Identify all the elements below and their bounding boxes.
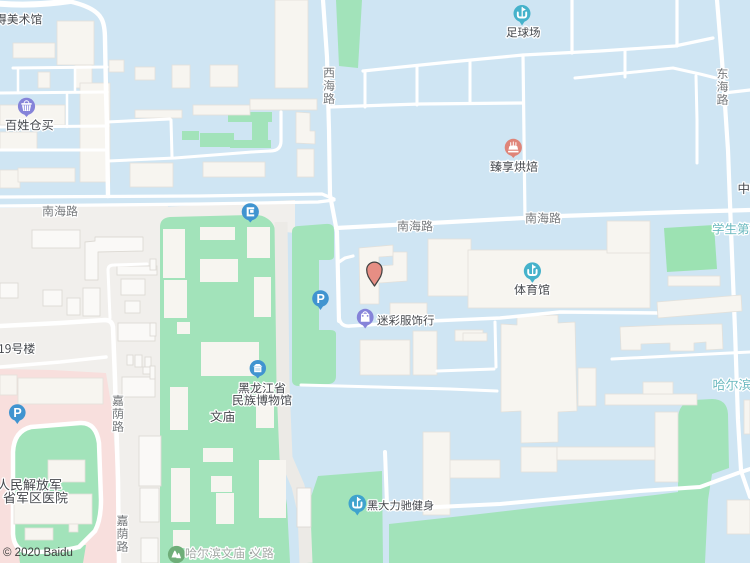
- svg-text:P: P: [317, 292, 325, 306]
- svg-text:P: P: [13, 406, 21, 420]
- svg-text:© 2020 Baidu: © 2020 Baidu: [3, 547, 73, 559]
